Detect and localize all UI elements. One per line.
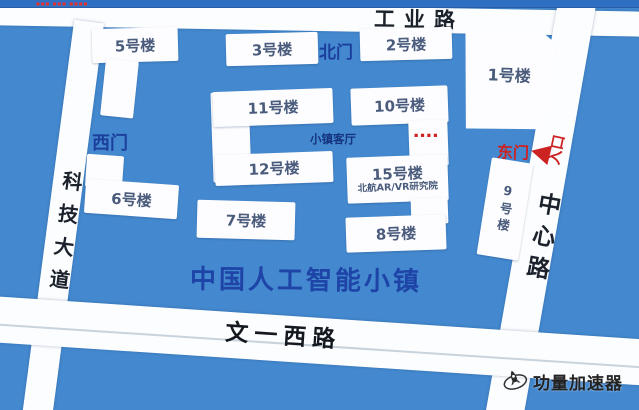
watermark: 功量加速器 — [502, 368, 623, 394]
building-7: 7号楼 — [197, 200, 296, 241]
header-red-marks: ■■■ ■■■ ■■■■ — [36, 1, 88, 6]
building-6: 6号楼 — [84, 179, 179, 219]
map-title: 中国人工智能小镇 — [190, 259, 422, 298]
ai-town-map: ■■■ ■■■ ■■■■ 工业路 科技大道 中心路 文一西路 5号楼 3号楼 2… — [0, 0, 639, 410]
building-15: 15号楼 北航AR/VR研究院 — [346, 154, 449, 203]
road-wenyi-label: 文一西路 — [224, 313, 342, 355]
watermark-text: 功量加速器 — [533, 369, 623, 394]
road-keji-label: 科技大道 — [41, 169, 87, 304]
building-12: 12号楼 — [214, 151, 333, 186]
north-gate-label: 北门 — [319, 38, 353, 63]
header-strip: ■■■ ■■■ ■■■■ — [0, 0, 639, 8]
building-2: 2号楼 — [360, 27, 453, 61]
town-lobby-label: 小镇客厅 — [310, 131, 356, 147]
red-dots-marker: ▪▪▪▪ — [414, 131, 440, 139]
inner-path-west — [100, 58, 139, 118]
building-1: 1号楼 — [460, 26, 558, 131]
building-5: 5号楼 — [92, 27, 179, 63]
rocket-icon — [499, 365, 532, 398]
building-15-institute-label: 北航AR/VR研究院 — [357, 180, 438, 194]
building-11: 11号楼 — [212, 88, 333, 127]
west-gate-label: 西门 — [92, 129, 128, 155]
road-keji-avenue: 科技大道 — [22, 20, 104, 410]
building-3: 3号楼 — [226, 32, 319, 66]
east-gate-label: 东门 — [497, 138, 530, 163]
building-8: 8号楼 — [345, 214, 446, 252]
building-15-label: 15号楼 — [372, 165, 423, 183]
